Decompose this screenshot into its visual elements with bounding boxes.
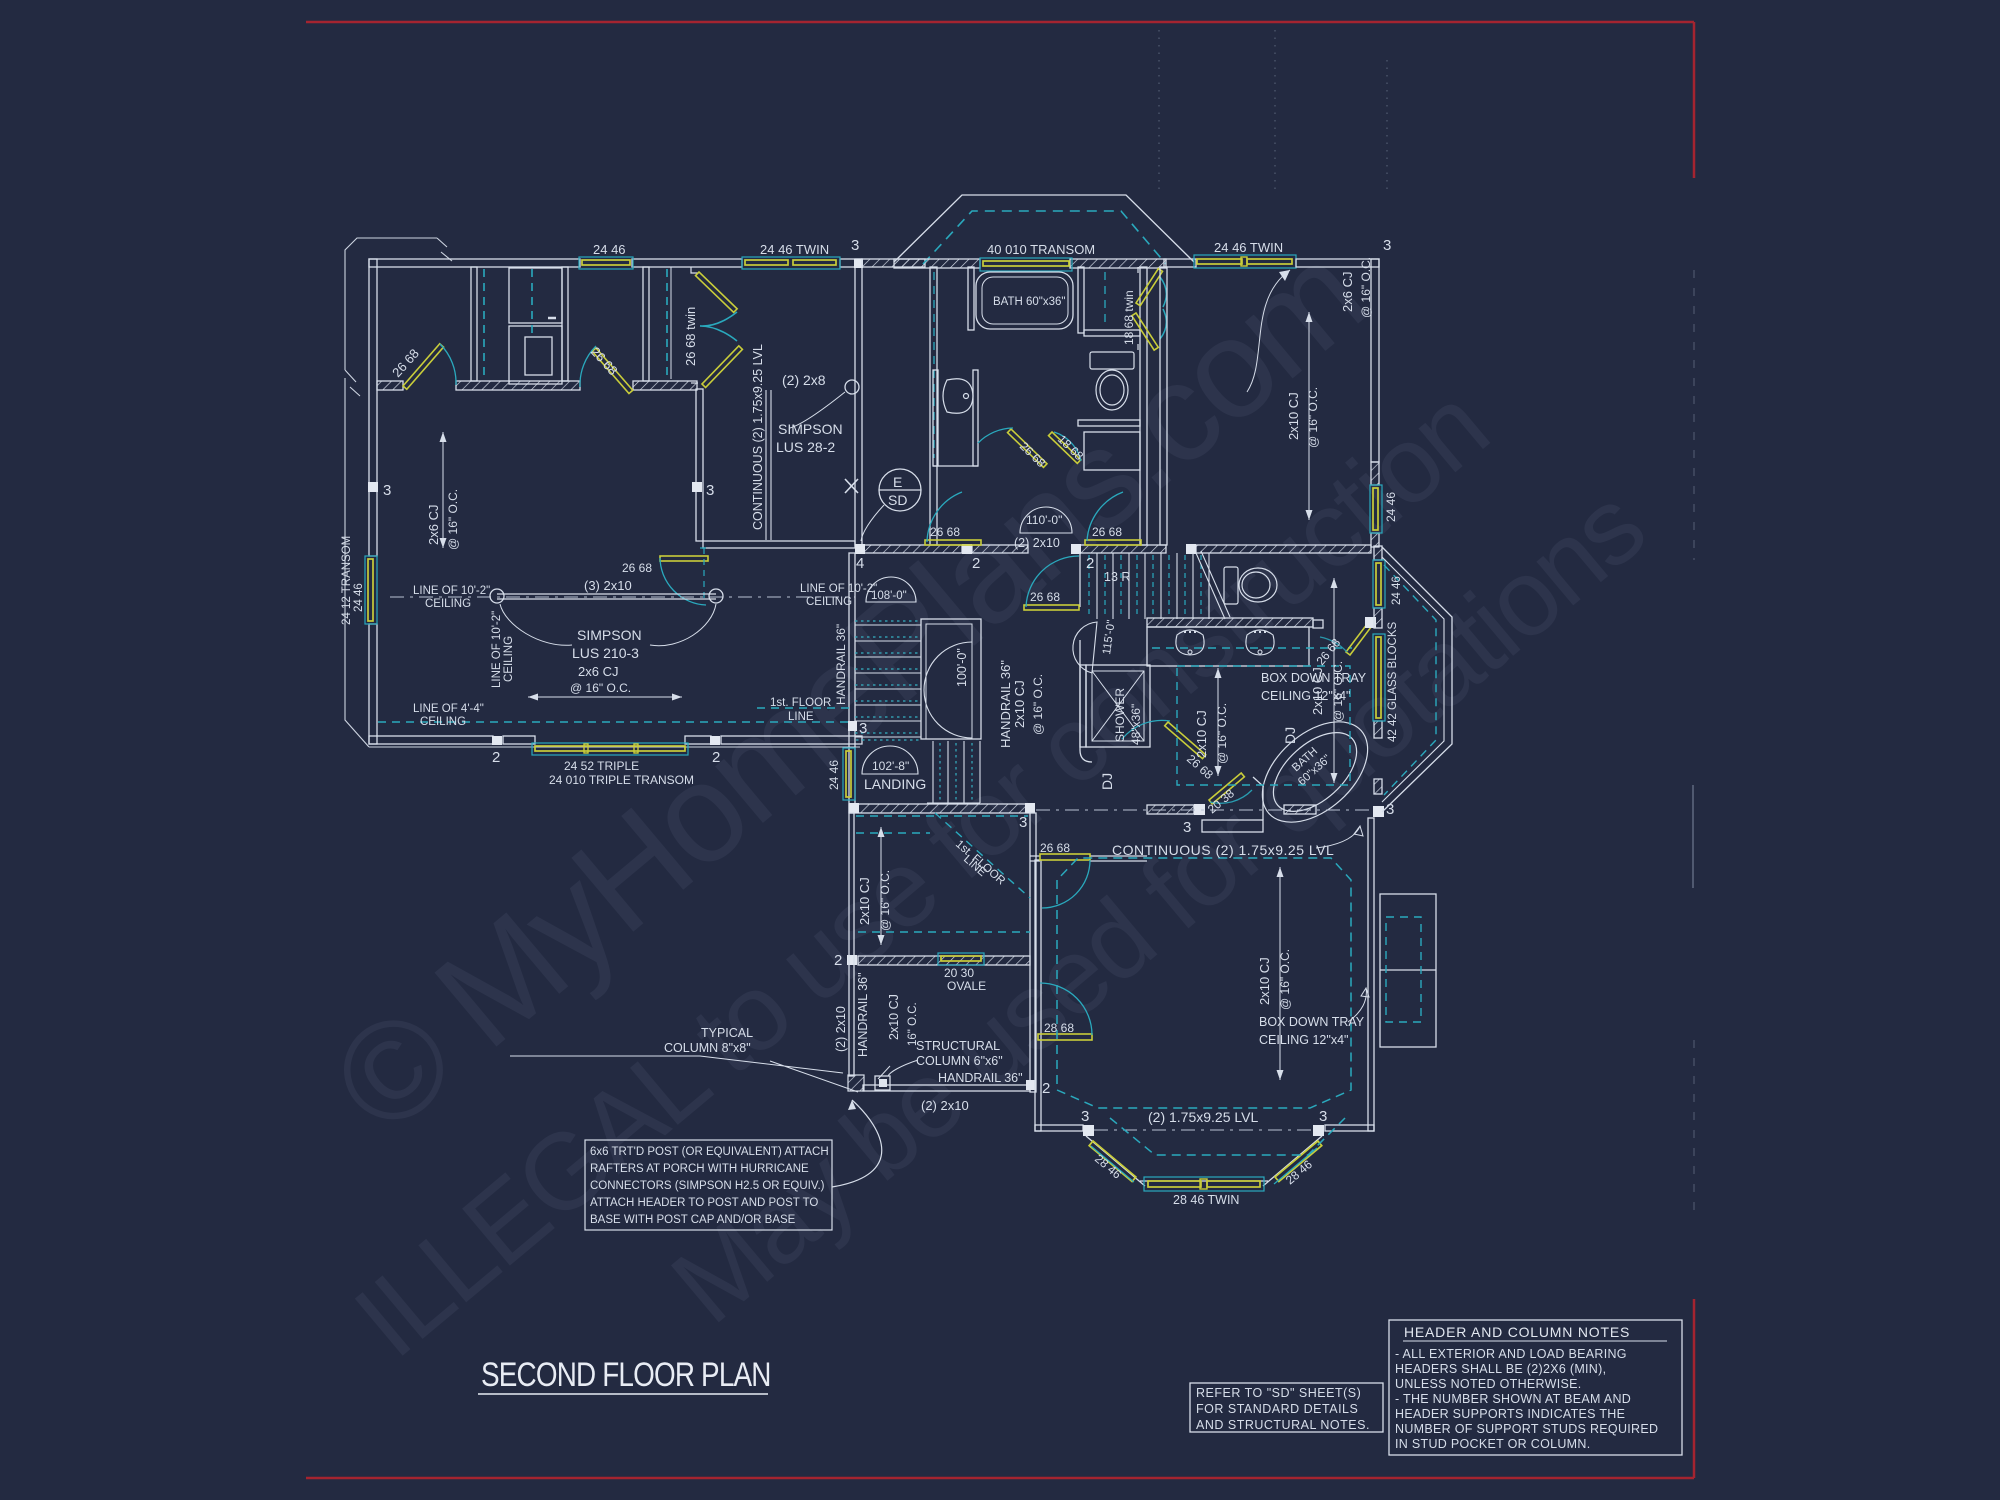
svg-text:@ 16" O.C.: @ 16" O.C. <box>1306 387 1320 448</box>
svg-text:48"x36": 48"x36" <box>1129 704 1143 745</box>
svg-text:STRUCTURAL: STRUCTURAL <box>916 1039 1000 1053</box>
svg-text:- THE NUMBER SHOWN AT BEAM AND: - THE NUMBER SHOWN AT BEAM AND <box>1395 1392 1631 1406</box>
svg-text:2x10 CJ: 2x10 CJ <box>1012 680 1027 728</box>
svg-text:26 68: 26 68 <box>588 344 621 378</box>
svg-text:(2) 2x10: (2) 2x10 <box>921 1098 969 1113</box>
svg-text:CEILING: CEILING <box>503 636 515 682</box>
svg-text:40 010 TRANSOM: 40 010 TRANSOM <box>987 242 1095 257</box>
svg-text:- ALL EXTERIOR AND LOAD BEARIN: - ALL EXTERIOR AND LOAD BEARING <box>1395 1347 1627 1361</box>
svg-text:26 68: 26 68 <box>1040 841 1070 855</box>
svg-text:26 68: 26 68 <box>1030 590 1060 604</box>
svg-text:ATTACH HEADER TO POST AND POST: ATTACH HEADER TO POST AND POST TO <box>590 1197 818 1209</box>
svg-text:(2) 2x10: (2) 2x10 <box>834 1006 848 1052</box>
svg-text:@ 16" O.C.: @ 16" O.C. <box>1359 257 1373 318</box>
svg-text:SIMPSON: SIMPSON <box>778 421 843 437</box>
svg-text:3: 3 <box>851 237 859 254</box>
svg-text:24 12 TRANSOM: 24 12 TRANSOM <box>341 536 353 625</box>
svg-text:13 R: 13 R <box>1104 570 1130 584</box>
svg-text:6x6 TRT'D POST (OR EQUIVALENT): 6x6 TRT'D POST (OR EQUIVALENT) ATTACH <box>590 1146 829 1158</box>
svg-text:26 68: 26 68 <box>930 525 960 539</box>
svg-text:24 46 TWIN: 24 46 TWIN <box>1214 240 1283 255</box>
svg-text:SECOND FLOOR PLAN: SECOND FLOOR PLAN <box>481 1355 771 1393</box>
svg-text:LINE OF 10'-2": LINE OF 10'-2" <box>491 611 503 688</box>
svg-text:@ 16" O.C.: @ 16" O.C. <box>1215 703 1229 764</box>
svg-text:3: 3 <box>706 482 714 499</box>
svg-text:24 010 TRIPLE TRANSOM: 24 010 TRIPLE TRANSOM <box>549 773 694 787</box>
svg-text:@ 16" O.C.: @ 16" O.C. <box>446 489 460 550</box>
svg-text:HANDRAIL 36": HANDRAIL 36" <box>834 624 848 705</box>
svg-text:42 42 GLASS BLOCKS: 42 42 GLASS BLOCKS <box>1387 621 1399 742</box>
svg-text:28 68: 28 68 <box>1044 1021 1074 1035</box>
svg-text:DJ: DJ <box>1099 773 1115 790</box>
svg-text:IN STUD POCKET OR COLUMN.: IN STUD POCKET OR COLUMN. <box>1395 1437 1590 1451</box>
svg-text:2: 2 <box>492 749 500 766</box>
svg-text:26 68: 26 68 <box>622 561 652 575</box>
svg-text:CEILING 12"x4": CEILING 12"x4" <box>1261 689 1350 703</box>
svg-text:2: 2 <box>972 555 980 572</box>
svg-text:UNLESS NOTED OTHERWISE.: UNLESS NOTED OTHERWISE. <box>1395 1377 1582 1391</box>
svg-text:CEILING: CEILING <box>425 598 471 610</box>
svg-text:BASE WITH POST CAP AND/OR BASE: BASE WITH POST CAP AND/OR BASE <box>590 1214 796 1226</box>
svg-text:BOX DOWN TRAY: BOX DOWN TRAY <box>1259 1015 1365 1029</box>
svg-text:BOX DOWN TRAY: BOX DOWN TRAY <box>1261 671 1367 685</box>
svg-text:100'-0": 100'-0" <box>955 648 969 687</box>
svg-text:LINE: LINE <box>788 711 814 723</box>
svg-text:4: 4 <box>856 555 864 572</box>
svg-text:26 68: 26 68 <box>1092 525 1122 539</box>
svg-text:2: 2 <box>1086 555 1094 572</box>
svg-text:CONTINUOUS (2) 1.75x9.25 LVL: CONTINUOUS (2) 1.75x9.25 LVL <box>1112 842 1334 858</box>
svg-text:CONTINUOUS (2) 1.75x9.25 LVL: CONTINUOUS (2) 1.75x9.25 LVL <box>751 344 765 530</box>
svg-text:COLUMN 8"x8": COLUMN 8"x8" <box>664 1041 751 1055</box>
svg-text:@ 16" O.C.: @ 16" O.C. <box>570 681 631 695</box>
svg-text:TYPICAL: TYPICAL <box>701 1026 753 1040</box>
svg-text:(3) 2x10: (3) 2x10 <box>584 578 632 593</box>
svg-text:E: E <box>893 474 902 490</box>
svg-text:24 46: 24 46 <box>1391 576 1403 605</box>
svg-text:SD: SD <box>888 492 907 508</box>
svg-text:1st. FLOOR: 1st. FLOOR <box>770 697 831 709</box>
svg-text:3: 3 <box>383 482 391 499</box>
svg-text:NUMBER OF SUPPORT STUDS REQUIR: NUMBER OF SUPPORT STUDS REQUIRED <box>1395 1422 1658 1436</box>
svg-text:LINE OF 10'-2": LINE OF 10'-2" <box>800 583 877 595</box>
svg-text:LINE OF 4'-4": LINE OF 4'-4" <box>413 703 484 715</box>
svg-text:LANDING: LANDING <box>864 776 926 792</box>
svg-text:18 68 twin: 18 68 twin <box>1122 290 1136 345</box>
svg-text:@ 16" O.C.: @ 16" O.C. <box>1278 949 1292 1010</box>
svg-text:3: 3 <box>1386 801 1394 818</box>
svg-text:24 46: 24 46 <box>353 583 365 612</box>
svg-text:COLUMN 6"x6": COLUMN 6"x6" <box>916 1054 1003 1068</box>
svg-text:CEILING: CEILING <box>420 716 466 728</box>
svg-text:LUS 28-2: LUS 28-2 <box>776 439 835 455</box>
svg-text:SHOWER: SHOWER <box>1113 688 1127 742</box>
svg-text:24 52 TRIPLE: 24 52 TRIPLE <box>564 759 639 773</box>
svg-text:2x6 CJ: 2x6 CJ <box>426 505 441 545</box>
svg-text:26 68 twin: 26 68 twin <box>683 307 698 366</box>
svg-text:3: 3 <box>1319 1108 1327 1125</box>
svg-text:OVALE: OVALE <box>947 979 986 993</box>
svg-text:LUS 210-3: LUS 210-3 <box>572 645 639 661</box>
svg-text:2x10 CJ: 2x10 CJ <box>887 994 901 1040</box>
svg-text:2x10 CJ: 2x10 CJ <box>1257 957 1272 1005</box>
svg-text:@ 16" O.C.: @ 16" O.C. <box>1031 674 1045 735</box>
svg-text:(2) 1.75x9.25 LVL: (2) 1.75x9.25 LVL <box>1148 1109 1258 1125</box>
svg-text:BATH 60"x36": BATH 60"x36" <box>993 296 1066 308</box>
svg-text:3: 3 <box>859 720 867 737</box>
svg-text:AND STRUCTURAL NOTES.: AND STRUCTURAL NOTES. <box>1196 1418 1370 1432</box>
svg-text:3: 3 <box>1019 814 1027 831</box>
svg-text:108'-0": 108'-0" <box>871 590 907 602</box>
svg-text:2x10 CJ: 2x10 CJ <box>1286 392 1301 440</box>
svg-text:DJ: DJ <box>1282 727 1298 744</box>
svg-text:20 30: 20 30 <box>944 966 974 980</box>
svg-text:28 46: 28 46 <box>1283 1157 1315 1187</box>
svg-text:@ 16" O.C.: @ 16" O.C. <box>878 870 892 931</box>
svg-text:2: 2 <box>712 749 720 766</box>
svg-text:2x10 CJ: 2x10 CJ <box>1194 710 1209 758</box>
svg-text:3: 3 <box>1383 237 1391 254</box>
svg-text:2: 2 <box>834 952 842 969</box>
svg-text:HANDRAIL 36": HANDRAIL 36" <box>938 1071 1023 1085</box>
svg-text:HEADER AND COLUMN NOTES: HEADER AND COLUMN NOTES <box>1404 1324 1630 1340</box>
svg-text:HEADERS SHALL BE (2)2X6 (MIN),: HEADERS SHALL BE (2)2X6 (MIN), <box>1395 1362 1606 1376</box>
svg-text:(2) 2x8: (2) 2x8 <box>782 372 826 388</box>
svg-text:26 68: 26 68 <box>389 346 422 380</box>
svg-text:2x6 CJ: 2x6 CJ <box>1340 272 1355 312</box>
svg-text:24 46: 24 46 <box>827 760 841 790</box>
svg-text:28 46 TWIN: 28 46 TWIN <box>1173 1193 1239 1207</box>
svg-text:RAFTERS AT PORCH WITH HURRICAN: RAFTERS AT PORCH WITH HURRICANE <box>590 1163 809 1175</box>
svg-text:24 46: 24 46 <box>1384 492 1398 522</box>
svg-text:REFER TO "SD" SHEET(S): REFER TO "SD" SHEET(S) <box>1196 1386 1361 1400</box>
svg-text:HANDRAIL 36": HANDRAIL 36" <box>856 972 870 1057</box>
svg-text:SIMPSON: SIMPSON <box>577 627 642 643</box>
svg-text:LINE OF 10'-2": LINE OF 10'-2" <box>413 585 490 597</box>
svg-text:CEILING 12"x4": CEILING 12"x4" <box>1259 1033 1348 1047</box>
svg-text:24 46: 24 46 <box>593 242 626 257</box>
svg-text:HEADER SUPPORTS INDICATES THE: HEADER SUPPORTS INDICATES THE <box>1395 1407 1625 1421</box>
svg-text:CONNECTORS (SIMPSON H2.5 OR EQ: CONNECTORS (SIMPSON H2.5 OR EQUIV.) <box>590 1180 825 1192</box>
svg-text:FOR STANDARD DETAILS: FOR STANDARD DETAILS <box>1196 1402 1358 1416</box>
svg-text:102'-8": 102'-8" <box>872 759 909 773</box>
svg-text:2x6 CJ: 2x6 CJ <box>578 664 618 679</box>
svg-text:110'-0": 110'-0" <box>1026 513 1062 527</box>
svg-text:2x10 CJ: 2x10 CJ <box>857 877 872 925</box>
svg-text:3: 3 <box>1081 1108 1089 1125</box>
svg-text:28 46: 28 46 <box>1092 1152 1124 1182</box>
svg-text:2: 2 <box>1042 1080 1050 1097</box>
svg-text:CEILING: CEILING <box>806 596 852 608</box>
svg-text:3: 3 <box>1183 819 1191 836</box>
svg-text:24 46 TWIN: 24 46 TWIN <box>760 242 829 257</box>
svg-text:(2) 2x10: (2) 2x10 <box>1014 536 1060 550</box>
svg-text:HANDRAIL 36": HANDRAIL 36" <box>998 660 1013 748</box>
